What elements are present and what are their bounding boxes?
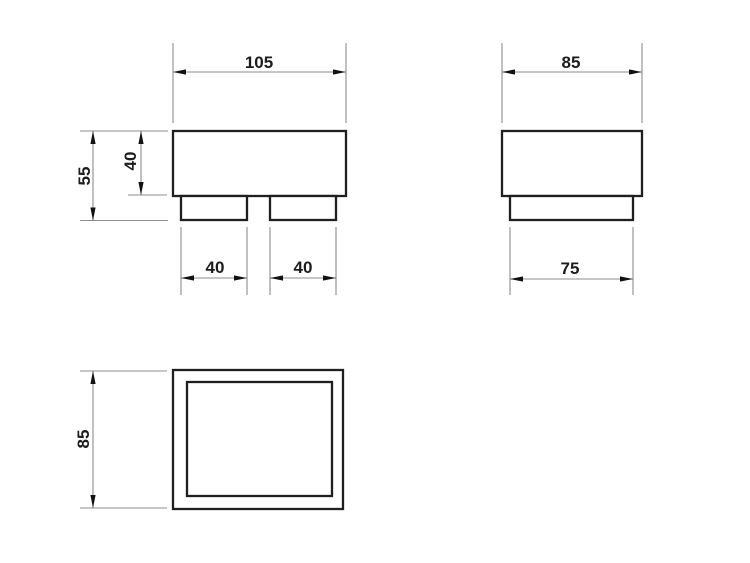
dim-arrow-right-icon — [234, 275, 247, 280]
dim-arrow-right-icon — [333, 69, 346, 74]
side-dim-overall-width: 85 — [502, 43, 642, 123]
dim-arrow-up-icon — [90, 371, 95, 384]
technical-drawing: 105 55 40 40 — [0, 0, 750, 563]
dim-arrow-left-icon — [270, 275, 283, 280]
dim-arrow-left-icon — [173, 69, 186, 74]
side-view-foot — [510, 196, 633, 220]
top-dim-overall-depth: 85 — [74, 371, 167, 508]
front-dim-overall-height: 55 — [75, 131, 168, 221]
dim-arrow-up-icon — [138, 131, 143, 144]
dimension-label: 105 — [245, 53, 273, 72]
front-dim-right-foot-width: 40 — [270, 227, 336, 295]
dim-arrow-left-icon — [510, 276, 523, 281]
front-view-left-foot — [181, 196, 247, 220]
dim-arrow-right-icon — [629, 69, 642, 74]
front-view: 105 55 40 40 — [75, 43, 346, 295]
dimension-label: 55 — [75, 167, 94, 186]
dim-arrow-left-icon — [502, 69, 515, 74]
top-view-inner-outline — [187, 382, 332, 496]
dimension-label: 40 — [206, 258, 225, 277]
side-view-body — [502, 131, 642, 196]
dimension-label: 40 — [121, 152, 140, 171]
front-view-right-foot — [270, 196, 336, 220]
dim-arrow-left-icon — [181, 275, 194, 280]
dim-arrow-up-icon — [90, 131, 95, 144]
front-dim-body-height: 40 — [121, 131, 167, 195]
dim-arrow-right-icon — [323, 275, 336, 280]
side-dim-foot-width: 75 — [510, 227, 633, 295]
drawing-canvas: 105 55 40 40 — [0, 0, 750, 563]
front-dim-overall-width: 105 — [173, 43, 346, 123]
dimension-label: 85 — [74, 430, 93, 449]
dimension-label: 85 — [562, 53, 581, 72]
top-view: 85 — [74, 370, 343, 509]
front-view-body — [173, 131, 346, 196]
dim-arrow-right-icon — [620, 276, 633, 281]
side-view: 85 75 — [502, 43, 642, 295]
dimension-label: 75 — [561, 259, 580, 278]
dim-arrow-down-icon — [90, 208, 95, 221]
dimension-label: 40 — [294, 258, 313, 277]
dim-arrow-down-icon — [138, 182, 143, 195]
front-dim-left-foot-width: 40 — [181, 227, 247, 295]
dim-arrow-down-icon — [90, 495, 95, 508]
